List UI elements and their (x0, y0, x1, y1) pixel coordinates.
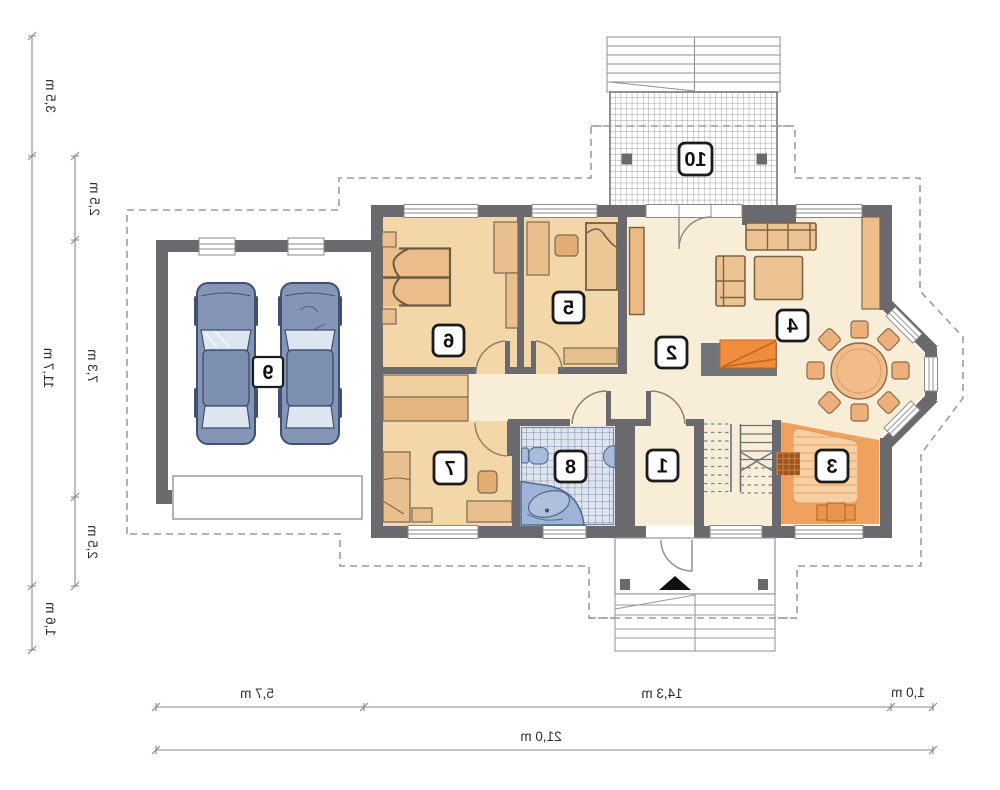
svg-text:21,0 m: 21,0 m (520, 729, 561, 744)
svg-text:4: 4 (786, 316, 798, 338)
svg-text:7,3 m: 7,3 m (85, 349, 100, 383)
svg-text:11,7 m: 11,7 m (41, 348, 56, 388)
svg-text:1: 1 (657, 456, 668, 478)
svg-text:2,5 m: 2,5 m (87, 182, 102, 216)
svg-text:10: 10 (684, 149, 706, 171)
svg-text:14,3 m: 14,3 m (641, 686, 682, 701)
svg-text:8: 8 (565, 457, 576, 479)
svg-text:5,7 m: 5,7 m (240, 686, 274, 701)
svg-text:1,0 m: 1,0 m (891, 685, 925, 700)
svg-text:1,6 m: 1,6 m (43, 602, 58, 636)
svg-text:2: 2 (666, 343, 677, 365)
svg-text:2,5 m: 2,5 m (85, 525, 100, 559)
svg-text:5: 5 (563, 298, 574, 320)
svg-text:3: 3 (826, 456, 837, 478)
svg-text:6: 6 (443, 331, 454, 353)
svg-text:9: 9 (262, 362, 273, 384)
svg-text:7: 7 (444, 458, 455, 480)
svg-text:3,5 m: 3,5 m (43, 79, 58, 113)
